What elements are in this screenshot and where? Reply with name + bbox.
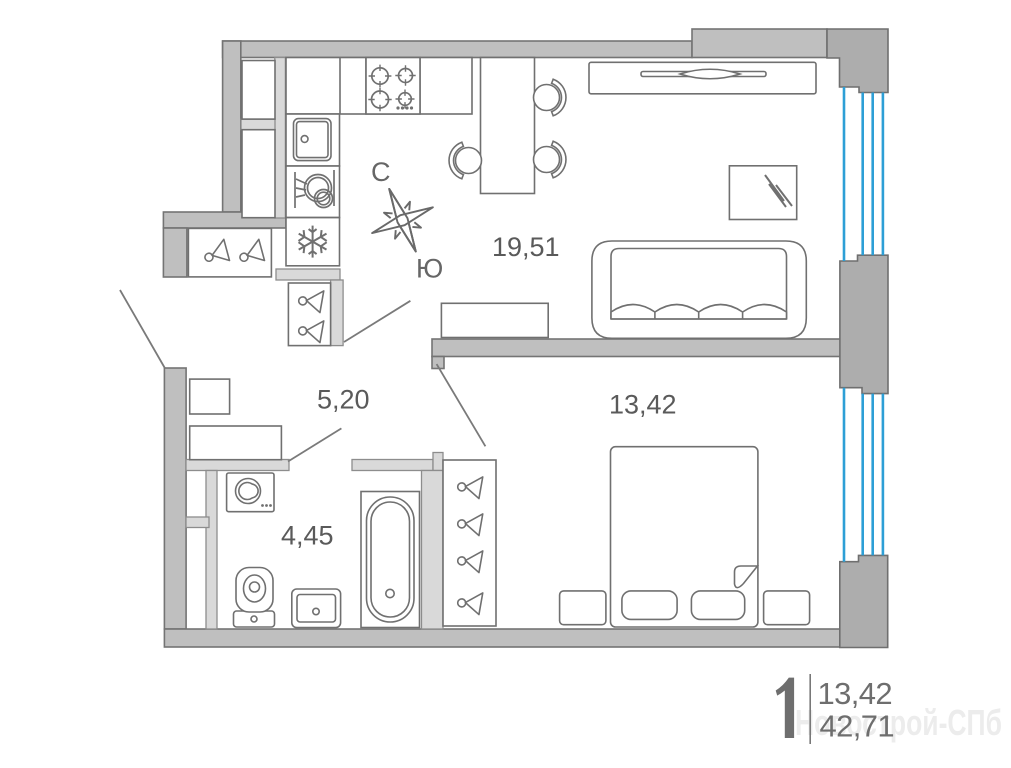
svg-text:4,45: 4,45 bbox=[281, 521, 334, 551]
svg-text:13,42: 13,42 bbox=[818, 676, 893, 711]
svg-text:19,51: 19,51 bbox=[492, 232, 560, 262]
svg-text:5,20: 5,20 bbox=[317, 385, 370, 415]
svg-text:13,42: 13,42 bbox=[609, 390, 677, 420]
svg-text:Ю: Ю bbox=[416, 254, 443, 284]
svg-text:С: С bbox=[371, 157, 391, 187]
svg-text:42,71: 42,71 bbox=[820, 709, 895, 744]
